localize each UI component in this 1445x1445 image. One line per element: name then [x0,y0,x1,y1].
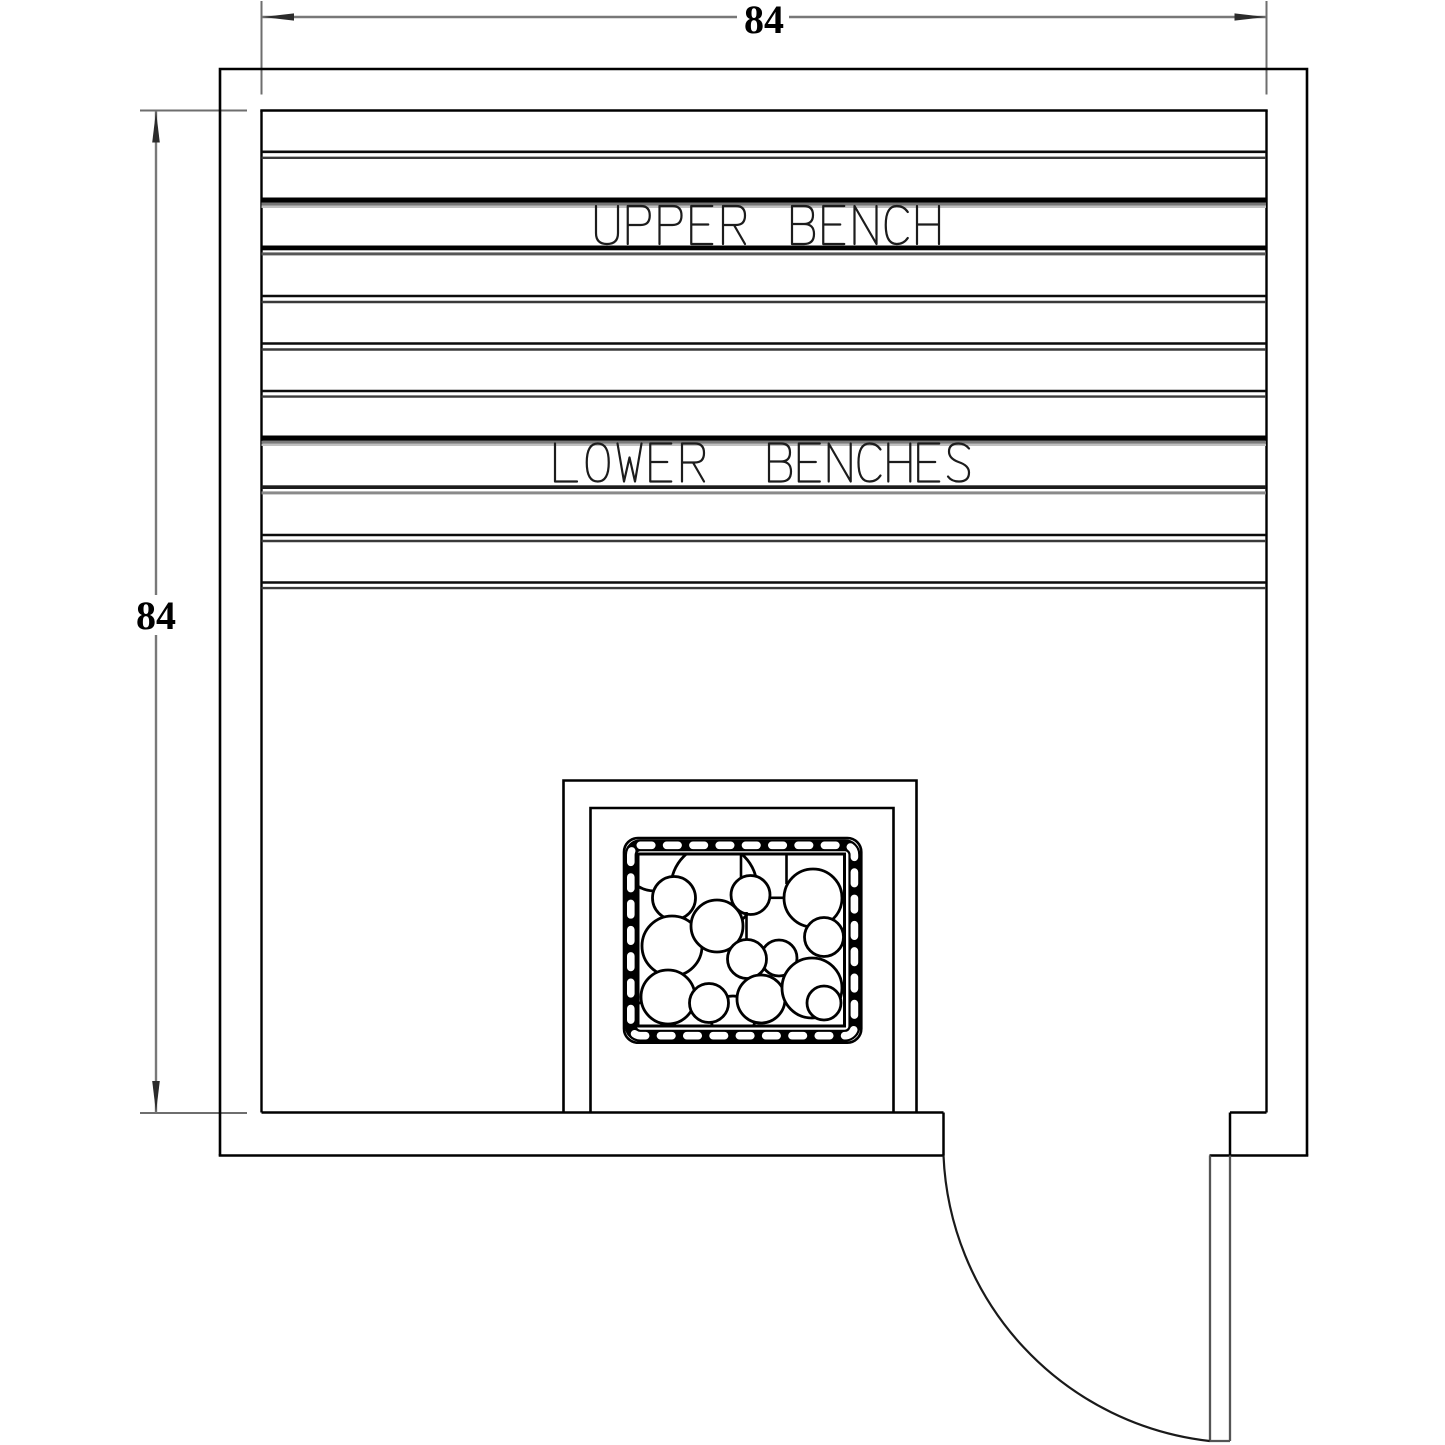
svg-text:84: 84 [744,0,784,42]
svg-text:84: 84 [136,593,176,638]
